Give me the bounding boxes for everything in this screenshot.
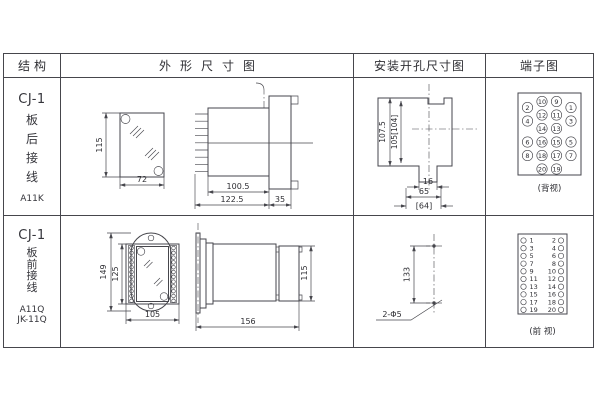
terminal-pin-number: 3 [569, 117, 573, 125]
terminal-pin [521, 284, 526, 289]
dim-body-depth: 100.5 [227, 182, 250, 191]
terminal-pin-number: 9 [554, 98, 558, 106]
terminal-pin-number: 16 [538, 138, 546, 146]
terminal-pin [521, 238, 526, 243]
terminal-pin-number: 20 [538, 165, 546, 173]
terminal-pin-number: 11 [552, 111, 560, 119]
structure-cell-front: CJ-1 板 前 接 线 A11Q JK-11Q [4, 216, 61, 347]
wiring-label: 板 后 接 线 [26, 111, 38, 187]
dim-cutout-outer-height: 107.5 [378, 121, 387, 143]
terminal-pins-right: 1 3 5 7 [566, 102, 576, 160]
terminal-pin-number: 19 [552, 165, 560, 173]
outline-drawing-front: 149 125 105 115 [61, 216, 354, 347]
terminal-pin [521, 307, 526, 312]
terminal-pin [558, 299, 563, 304]
mounting-drawing-rear: 107.5 105[104] 16 65 [64] [354, 78, 486, 216]
terminal-pin [558, 261, 563, 266]
terminal-pin [558, 284, 563, 289]
header-structure: 结构 [4, 54, 61, 78]
terminal-pin [558, 238, 563, 243]
dim-flange-depth: 35 [275, 195, 285, 204]
dim-total-depth: 122.5 [221, 195, 244, 204]
terminal-pin [558, 276, 563, 281]
terminal-pin-number: 2 [525, 104, 529, 112]
model-label: CJ-1 [18, 92, 45, 107]
dim-front-width: 105 [145, 310, 160, 319]
terminal-pin [521, 276, 526, 281]
terminal-cell-rear: 10 9 12 11 14 13 16 15 18 17 20 19 2 4 6 [486, 78, 593, 216]
spec-table: 结构 外形尺寸图 安装开孔尺寸图 端子图 CJ-1 板 后 接 线 A11K [3, 53, 594, 348]
mounting-drawing-front: 133 2-Φ5 [354, 216, 486, 347]
terminal-pin [558, 307, 563, 312]
terminal-cell-front: 12 34 56 78 910 1112 1314 1516 1718 1920… [486, 216, 593, 347]
terminal-pin-number: 7 [569, 152, 573, 160]
terminal-pin-number: 19 [530, 306, 538, 314]
side-view-outline [195, 83, 313, 209]
terminal-pin-number: 18 [538, 152, 546, 160]
header-terminal: 端子图 [486, 54, 593, 78]
wiring-char: 后 [26, 130, 38, 149]
terminal-pin-number: 12 [538, 111, 546, 119]
dim-front-height: 115 [95, 137, 104, 152]
terminal-pin-number: 15 [552, 138, 560, 146]
header-terminal-label: 端子图 [520, 57, 559, 74]
terminal-pin-number: 6 [525, 138, 529, 146]
dim-cutout-width-alt: [64] [416, 202, 432, 211]
wiring-label: 板 前 接 线 [27, 247, 38, 293]
wiring-char: 线 [27, 282, 38, 294]
outline-cell-rear: 115 72 100.5 122.5 35 [61, 78, 354, 216]
header-structure-label: 结构 [14, 57, 50, 74]
terminal-pin-number: 17 [552, 152, 560, 160]
hole-centerline [410, 234, 442, 313]
terminal-pin [558, 269, 563, 274]
terminal-pin-number: 5 [569, 138, 573, 146]
dim-side-height: 115 [300, 265, 309, 280]
terminal-pin-number: 4 [525, 117, 529, 125]
terminal-pin [521, 246, 526, 251]
hole-callout: 2-Φ5 [382, 310, 401, 319]
view-label-rear: (背视) [538, 183, 562, 194]
dim-front-width: 72 [137, 175, 147, 184]
dim-cutout-inner-height: 105[104] [390, 115, 399, 150]
terminal-pin-number: 20 [548, 306, 556, 314]
terminal-pin-number: 10 [538, 98, 546, 106]
type-code: JK-11Q [17, 315, 46, 325]
dim-hole-spacing: 133 [403, 267, 412, 282]
mounting-cell-front: 133 2-Φ5 [354, 216, 486, 347]
side-view-outline [196, 223, 315, 331]
terminal-pins-left: 2 4 6 8 [522, 102, 532, 160]
header-outline-label: 外形尺寸图 [150, 57, 264, 74]
type-code: A11Q [17, 305, 46, 315]
type-codes: A11Q JK-11Q [17, 305, 46, 325]
structure-cell-rear: CJ-1 板 后 接 线 A11K [4, 78, 61, 216]
wiring-char: 接 [26, 149, 38, 168]
type-code: A11K [20, 194, 44, 204]
dim-inner-height: 125 [111, 266, 120, 281]
terminal-pin [558, 246, 563, 251]
wiring-char: 线 [26, 168, 38, 187]
terminal-diagram-rear: 10 9 12 11 14 13 16 15 18 17 20 19 2 4 6 [486, 78, 593, 216]
front-view-outline [102, 113, 164, 189]
dimension-sheet: 结构 外形尺寸图 安装开孔尺寸图 端子图 CJ-1 板 后 接 线 A11K [0, 0, 600, 400]
terminal-pin [558, 253, 563, 258]
wiring-char: 接 [27, 270, 38, 282]
mounting-cell-rear: 107.5 105[104] 16 65 [64] [354, 78, 486, 216]
header-mounting-label: 安装开孔尺寸图 [374, 57, 465, 74]
terminal-pin-number: 14 [538, 125, 546, 133]
terminal-pin-number: 8 [525, 152, 529, 160]
header-outline: 外形尺寸图 [61, 54, 354, 78]
dim-slot-width: 16 [423, 177, 433, 186]
terminal-pin [521, 269, 526, 274]
model-label: CJ-1 [18, 228, 45, 243]
outline-cell-front: 149 125 105 115 [61, 216, 354, 347]
terminal-diagram-front: 12 34 56 78 910 1112 1314 1516 1718 1920… [486, 216, 593, 347]
terminal-pin [521, 292, 526, 297]
wiring-char: 板 [27, 247, 38, 259]
terminal-pin-number: 13 [552, 125, 560, 133]
view-label-front: (前 视) [529, 326, 555, 337]
terminal-pins-mid: 10 9 12 11 14 13 16 15 18 17 20 19 [537, 96, 562, 174]
outline-drawing-rear: 115 72 100.5 122.5 35 [61, 78, 354, 216]
terminal-pin [558, 292, 563, 297]
terminal-pin [521, 299, 526, 304]
terminal-rows: 12 34 56 78 910 1112 1314 1516 1718 1920 [521, 237, 564, 314]
dim-cutout-width: 65 [419, 187, 429, 196]
terminal-pin [521, 261, 526, 266]
dim-outer-height: 149 [99, 264, 108, 279]
mounting-hole [432, 244, 435, 247]
header-mounting: 安装开孔尺寸图 [354, 54, 486, 78]
dim-total-depth: 156 [240, 317, 255, 326]
terminal-pin-number: 1 [569, 104, 573, 112]
wiring-char: 板 [26, 111, 38, 130]
terminal-pin [521, 253, 526, 258]
